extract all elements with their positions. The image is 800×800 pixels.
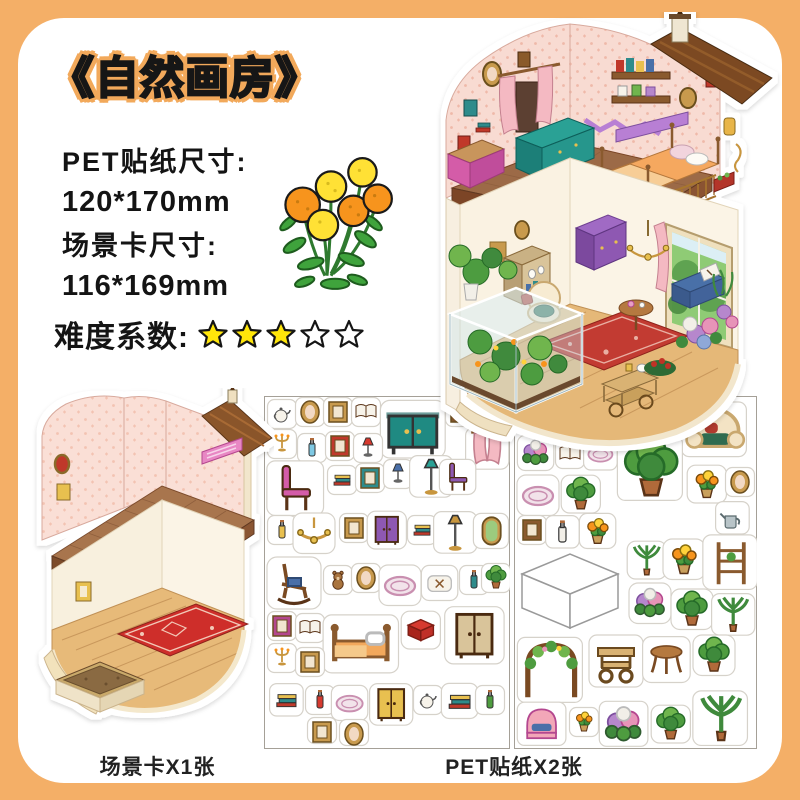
difficulty-row: 难度系数:	[54, 312, 365, 356]
star-icon	[299, 319, 331, 350]
scene-card-size-value: 116*169mm	[62, 270, 229, 303]
gold-wall-lamp	[724, 118, 741, 172]
chimney	[672, 16, 688, 42]
dollhouse-illustration	[420, 12, 795, 456]
wall-frame-oval	[55, 455, 69, 473]
scene-card-caption: 场景卡X1张	[40, 751, 275, 781]
scene-card-size-label: 场景卡尺寸:	[62, 224, 229, 263]
difficulty-stars	[197, 319, 365, 350]
star-icon	[231, 319, 263, 350]
star-icon	[265, 319, 297, 350]
difficulty-label: 难度系数:	[54, 312, 189, 356]
marigold-flowers-illustration	[263, 146, 395, 296]
pet-sticker-size: PET贴纸尺寸: 120*170mm	[62, 140, 248, 219]
pet-size-value: 120*170mm	[62, 186, 248, 219]
star-icon	[197, 319, 229, 350]
scene-card-size: 场景卡尺寸: 116*169mm	[62, 224, 229, 303]
stickers-caption: PET贴纸X2张	[268, 751, 760, 781]
star-icon	[333, 319, 365, 350]
pet-size-label: PET贴纸尺寸:	[62, 140, 248, 179]
terrarium	[450, 288, 582, 412]
wall-frame-small	[57, 484, 70, 500]
scene-card-illustration	[26, 388, 274, 740]
product-title: 《自然画房》	[50, 42, 320, 106]
